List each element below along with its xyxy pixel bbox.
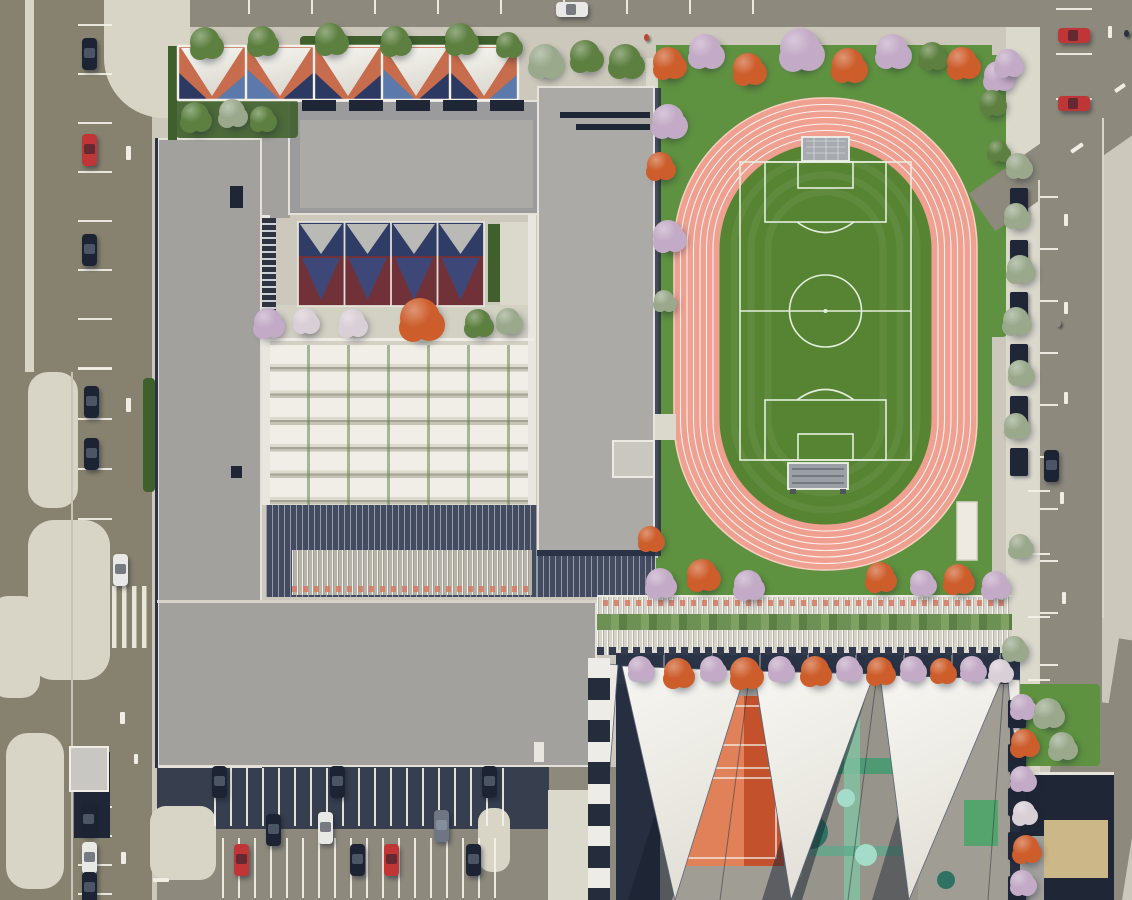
tree	[219, 99, 245, 125]
aerial-campus-photo	[0, 0, 1132, 900]
roof-south-wing-topline	[157, 600, 597, 603]
car	[84, 386, 99, 418]
crosswalk	[112, 586, 152, 648]
car-windshield	[332, 776, 343, 787]
tree	[248, 26, 276, 54]
sail-west-checker	[588, 658, 610, 900]
car	[234, 844, 249, 876]
track-equipment-box	[957, 502, 977, 560]
car	[82, 234, 97, 266]
tree	[930, 658, 954, 682]
tree	[1013, 801, 1035, 823]
tree	[960, 656, 984, 680]
car	[113, 554, 128, 586]
tree	[1010, 870, 1034, 894]
tree	[910, 570, 934, 594]
person	[644, 34, 649, 41]
roof-slot-2	[349, 100, 383, 111]
roof-tall-building	[537, 86, 655, 556]
tree	[700, 656, 724, 680]
sandpit-tan	[1044, 820, 1108, 878]
planter-box	[1010, 448, 1028, 476]
parking-stripes-left-1	[78, 24, 112, 372]
parking-ticks-right-low	[1028, 490, 1050, 690]
median-island-b	[28, 520, 110, 680]
car-windshield	[86, 448, 97, 459]
lane-dash	[1064, 392, 1068, 404]
tree	[995, 49, 1021, 75]
sidewalk-strip-left	[25, 0, 34, 372]
sail-canopy-building	[608, 650, 1020, 900]
tree	[570, 40, 600, 70]
roof-nw-block	[262, 138, 290, 218]
tree	[628, 656, 652, 680]
tree	[653, 47, 683, 77]
lane-dash	[1062, 592, 1066, 604]
tree	[1010, 694, 1034, 718]
car-windshield	[436, 820, 447, 831]
roof-north-wing-inner	[300, 120, 533, 208]
car-windshield	[484, 776, 495, 787]
tree	[652, 104, 684, 136]
car-windshield	[468, 854, 479, 865]
tree	[982, 571, 1008, 597]
car-windshield	[84, 144, 95, 155]
tree	[947, 47, 977, 77]
white-shade-rows	[270, 345, 535, 505]
car	[1058, 96, 1090, 111]
tree	[400, 298, 440, 338]
roof-tall-bar-2	[576, 124, 650, 130]
tree	[734, 570, 762, 598]
planter-walk-rail	[266, 338, 535, 341]
car-windshield	[214, 776, 225, 787]
roof-slot-1	[302, 100, 336, 111]
person	[1056, 320, 1061, 327]
car	[330, 766, 345, 798]
car-windshield	[83, 814, 94, 825]
parking-ticks-top-street	[248, 0, 770, 14]
center-spot	[824, 309, 828, 313]
tree	[250, 106, 274, 130]
car	[1044, 450, 1059, 482]
roof-south-wing	[157, 600, 597, 767]
tree	[646, 568, 674, 596]
car-windshield	[84, 852, 95, 863]
car-windshield	[115, 564, 126, 575]
tree	[1034, 698, 1062, 726]
lot-island-west	[150, 806, 216, 880]
pergola-band-pink	[603, 600, 1006, 606]
car	[318, 812, 333, 844]
car	[350, 844, 365, 876]
tree	[647, 152, 673, 178]
tree	[1009, 534, 1031, 556]
tree	[1049, 732, 1075, 758]
tree	[689, 34, 721, 66]
car-windshield	[84, 244, 95, 255]
car-windshield	[566, 4, 577, 15]
tree	[609, 44, 641, 76]
person	[1124, 30, 1129, 37]
tree	[836, 656, 860, 680]
tree	[293, 308, 317, 332]
tree	[496, 32, 520, 56]
lane-dash	[1108, 26, 1112, 38]
tree	[339, 309, 365, 335]
tree	[1004, 203, 1028, 227]
tree	[1003, 307, 1029, 333]
tree	[1010, 766, 1034, 790]
courtyard-pink-dashes	[292, 586, 532, 592]
tree	[529, 44, 561, 76]
tree	[1011, 729, 1037, 755]
tree	[801, 656, 829, 684]
green-wall-courtyard	[488, 224, 500, 302]
lot-stripes-row-a	[214, 768, 514, 826]
tree	[768, 656, 792, 680]
car	[556, 2, 588, 17]
tree	[496, 308, 520, 332]
lane-dash	[126, 146, 131, 160]
curb-line-left-street	[71, 372, 73, 900]
tree	[190, 27, 220, 57]
car	[81, 804, 96, 836]
roof-slot-5	[490, 100, 524, 111]
tree	[638, 526, 662, 550]
tree	[867, 657, 893, 683]
tree	[988, 140, 1008, 160]
tree	[687, 559, 717, 589]
running-track-and-field	[656, 45, 992, 600]
car-windshield	[86, 396, 97, 407]
car	[82, 872, 97, 900]
car	[82, 842, 97, 874]
curb-road-east	[1102, 118, 1104, 618]
tree	[465, 309, 491, 335]
tree	[919, 42, 945, 68]
car-windshield	[84, 48, 95, 59]
car-windshield	[1068, 98, 1079, 109]
tree	[1006, 153, 1030, 177]
car	[82, 134, 97, 166]
tree	[653, 220, 683, 250]
tree	[381, 26, 409, 54]
tree	[733, 53, 763, 83]
bus-shelter-roof	[69, 746, 109, 792]
tree	[832, 48, 864, 80]
tree	[315, 23, 345, 53]
tree	[445, 23, 475, 53]
roof-west-edge-dark	[155, 138, 158, 768]
car	[482, 766, 497, 798]
tree	[989, 659, 1011, 681]
lane-dash	[1064, 302, 1068, 314]
roof-tall-south-edge	[537, 550, 655, 556]
tree	[1008, 360, 1032, 384]
tree	[980, 90, 1004, 114]
car-windshield	[320, 822, 331, 833]
hedge-strip-street	[143, 378, 155, 492]
canopy-courtyard	[296, 220, 488, 308]
tree	[1004, 413, 1028, 437]
car	[466, 844, 481, 876]
walk-east-of-canopy	[500, 222, 528, 306]
tree	[730, 657, 760, 687]
tree	[780, 28, 820, 68]
car-windshield	[84, 882, 95, 893]
sidewalk-east-edge	[1102, 200, 1132, 680]
tree	[664, 658, 692, 686]
tree	[1002, 636, 1026, 660]
car	[1058, 28, 1090, 43]
tree	[866, 562, 894, 590]
roof-vent-box-1	[230, 186, 243, 208]
car-windshield	[386, 854, 397, 865]
tree	[1013, 835, 1039, 861]
car-windshield	[268, 824, 279, 835]
car-windshield	[1068, 30, 1079, 41]
car	[384, 844, 399, 876]
median-island-c	[0, 596, 40, 698]
roof-tall-bar-1	[560, 112, 650, 118]
car-windshield	[1046, 460, 1057, 471]
roof-pipe-detail	[534, 742, 544, 762]
tree	[900, 656, 924, 680]
pergola-band-fence	[597, 647, 1012, 655]
goal-top	[802, 137, 849, 161]
railing-east	[528, 215, 536, 505]
lane-dash	[120, 712, 125, 724]
car-windshield	[352, 854, 363, 865]
tree	[944, 564, 972, 592]
roof-slot-3	[396, 100, 430, 111]
car-windshield	[236, 854, 247, 865]
lane-dash	[126, 398, 131, 412]
lane-dash	[1064, 214, 1068, 226]
lane-dash	[1060, 492, 1064, 504]
tree	[876, 34, 908, 66]
car	[212, 766, 227, 798]
tree	[1007, 255, 1033, 281]
tree	[654, 290, 674, 310]
goal-bottom	[788, 463, 848, 494]
pergola-band-green	[597, 614, 1012, 630]
roof-vent-box-2	[231, 466, 242, 478]
car	[82, 38, 97, 70]
lane-dash	[153, 878, 169, 882]
lane-dash	[134, 754, 138, 764]
tree	[181, 102, 209, 130]
roof-slot-4	[443, 100, 477, 111]
median-island-d	[6, 733, 64, 889]
car	[84, 438, 99, 470]
tallbldg-south-slats	[537, 556, 655, 597]
roof-tall-notch	[612, 440, 655, 478]
car	[266, 814, 281, 846]
car	[434, 810, 449, 842]
tree	[254, 308, 282, 336]
lane-dash	[121, 852, 126, 864]
